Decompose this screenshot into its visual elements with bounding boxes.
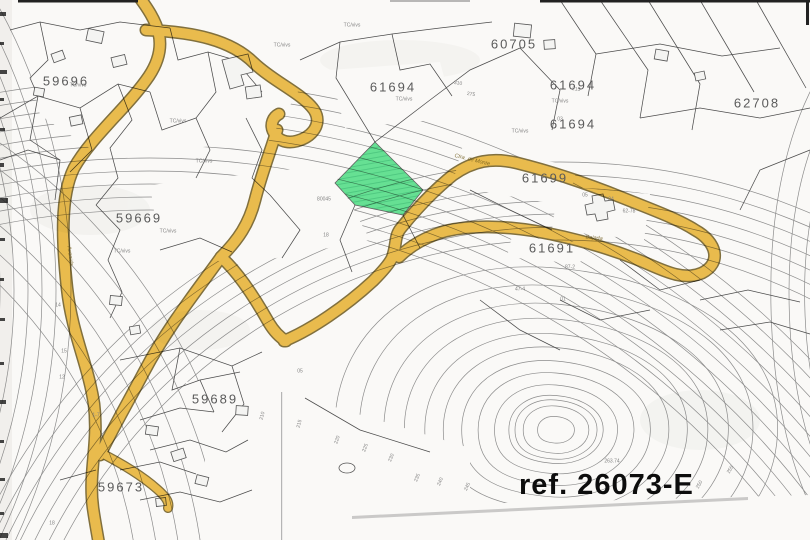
blank-paper-zones xyxy=(25,32,810,540)
map-canvas xyxy=(0,0,810,540)
cadastral-map-scan: 5969660705616946169461694627086169961691… xyxy=(0,0,810,540)
reference-number: ref. 26073-E xyxy=(519,471,754,500)
